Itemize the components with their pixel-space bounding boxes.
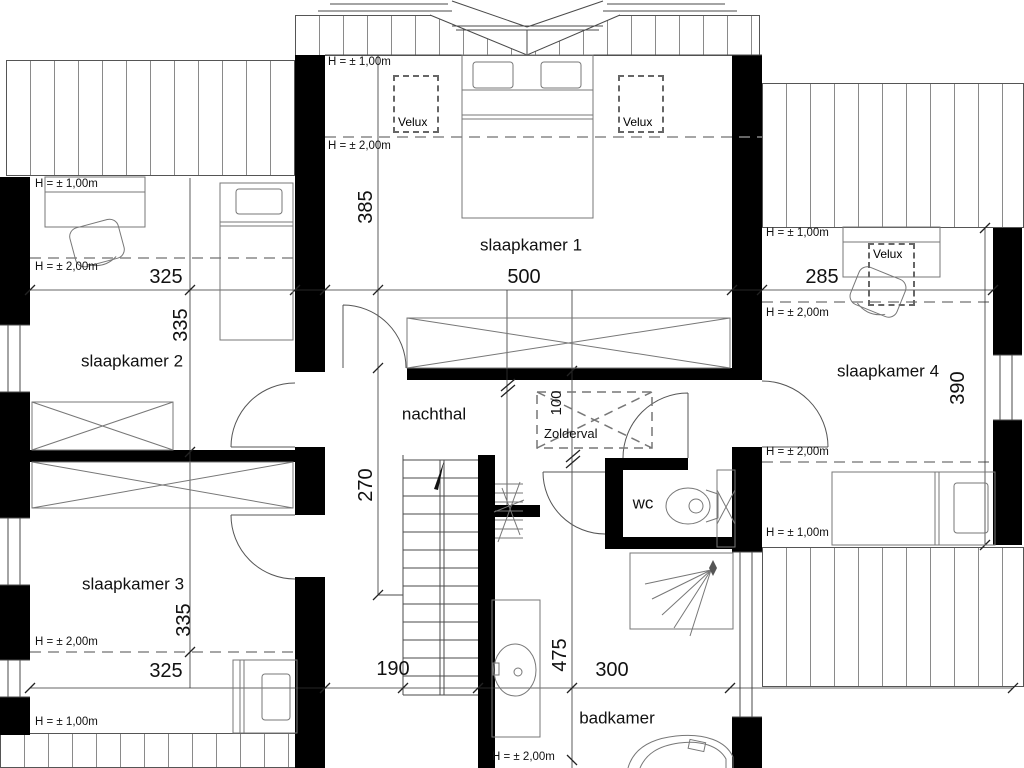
velux-label: Velux (623, 115, 652, 129)
dim-slaapkamer3-depth: 335 (173, 603, 195, 636)
dim-slaapkamer4-depth: 390 (947, 371, 969, 404)
dim-slaapkamer2-width: 325 (149, 266, 182, 288)
height-annotation: H = ± 2,00m (328, 140, 391, 153)
dim-zolderval: 100 (549, 390, 566, 415)
height-annotation: H = ± 1,00m (766, 227, 829, 240)
room-label-wc: wc (633, 495, 654, 514)
height-annotation: H = ± 1,00m (35, 178, 98, 191)
dim-slaapkamer1-width: 500 (507, 266, 540, 288)
height-annotation: H = ± 2,00m (766, 307, 829, 320)
height-annotation: H = ± 2,00m (492, 751, 555, 764)
room-label-slaapkamer-2: slaapkamer 2 (81, 353, 183, 372)
zolderval-label: Zolderval (544, 427, 597, 441)
room-label-nachthal: nachthal (402, 406, 466, 425)
height-annotation: H = ± 2,00m (766, 446, 829, 459)
room-label-slaapkamer-1: slaapkamer 1 (480, 237, 582, 256)
dim-slaapkamer4-width: 285 (805, 266, 838, 288)
velux-window: Velux (618, 75, 664, 133)
dim-badkamer-width: 300 (595, 659, 628, 681)
height-annotation: H = ± 2,00m (35, 636, 98, 649)
velux-label: Velux (873, 247, 902, 261)
height-annotation: H = ± 1,00m (328, 56, 391, 69)
height-annotation: H = ± 2,00m (35, 261, 98, 274)
dim-slaapkamer3-width: 325 (149, 660, 182, 682)
velux-window: Velux (393, 75, 439, 133)
room-label-badkamer: badkamer (579, 710, 655, 729)
velux-label: Velux (398, 115, 427, 129)
dim-stairwell-width: 190 (376, 658, 409, 680)
height-annotation: H = ± 1,00m (35, 716, 98, 729)
room-label-slaapkamer-3: slaapkamer 3 (82, 576, 184, 595)
dim-slaapkamer2-depth: 335 (170, 308, 192, 341)
floor-plan: Velux Velux Velux slaapkamer 1 slaapkame… (0, 0, 1024, 768)
height-annotation: H = ± 1,00m (766, 527, 829, 540)
floorplan-drawing (0, 0, 1024, 768)
dim-slaapkamer1-depth: 385 (355, 190, 377, 223)
room-label-slaapkamer-4: slaapkamer 4 (837, 363, 939, 382)
dim-nachthal-depth: 270 (355, 468, 377, 501)
dim-badkamer-depth: 475 (549, 638, 571, 671)
velux-window: Velux (868, 243, 915, 306)
